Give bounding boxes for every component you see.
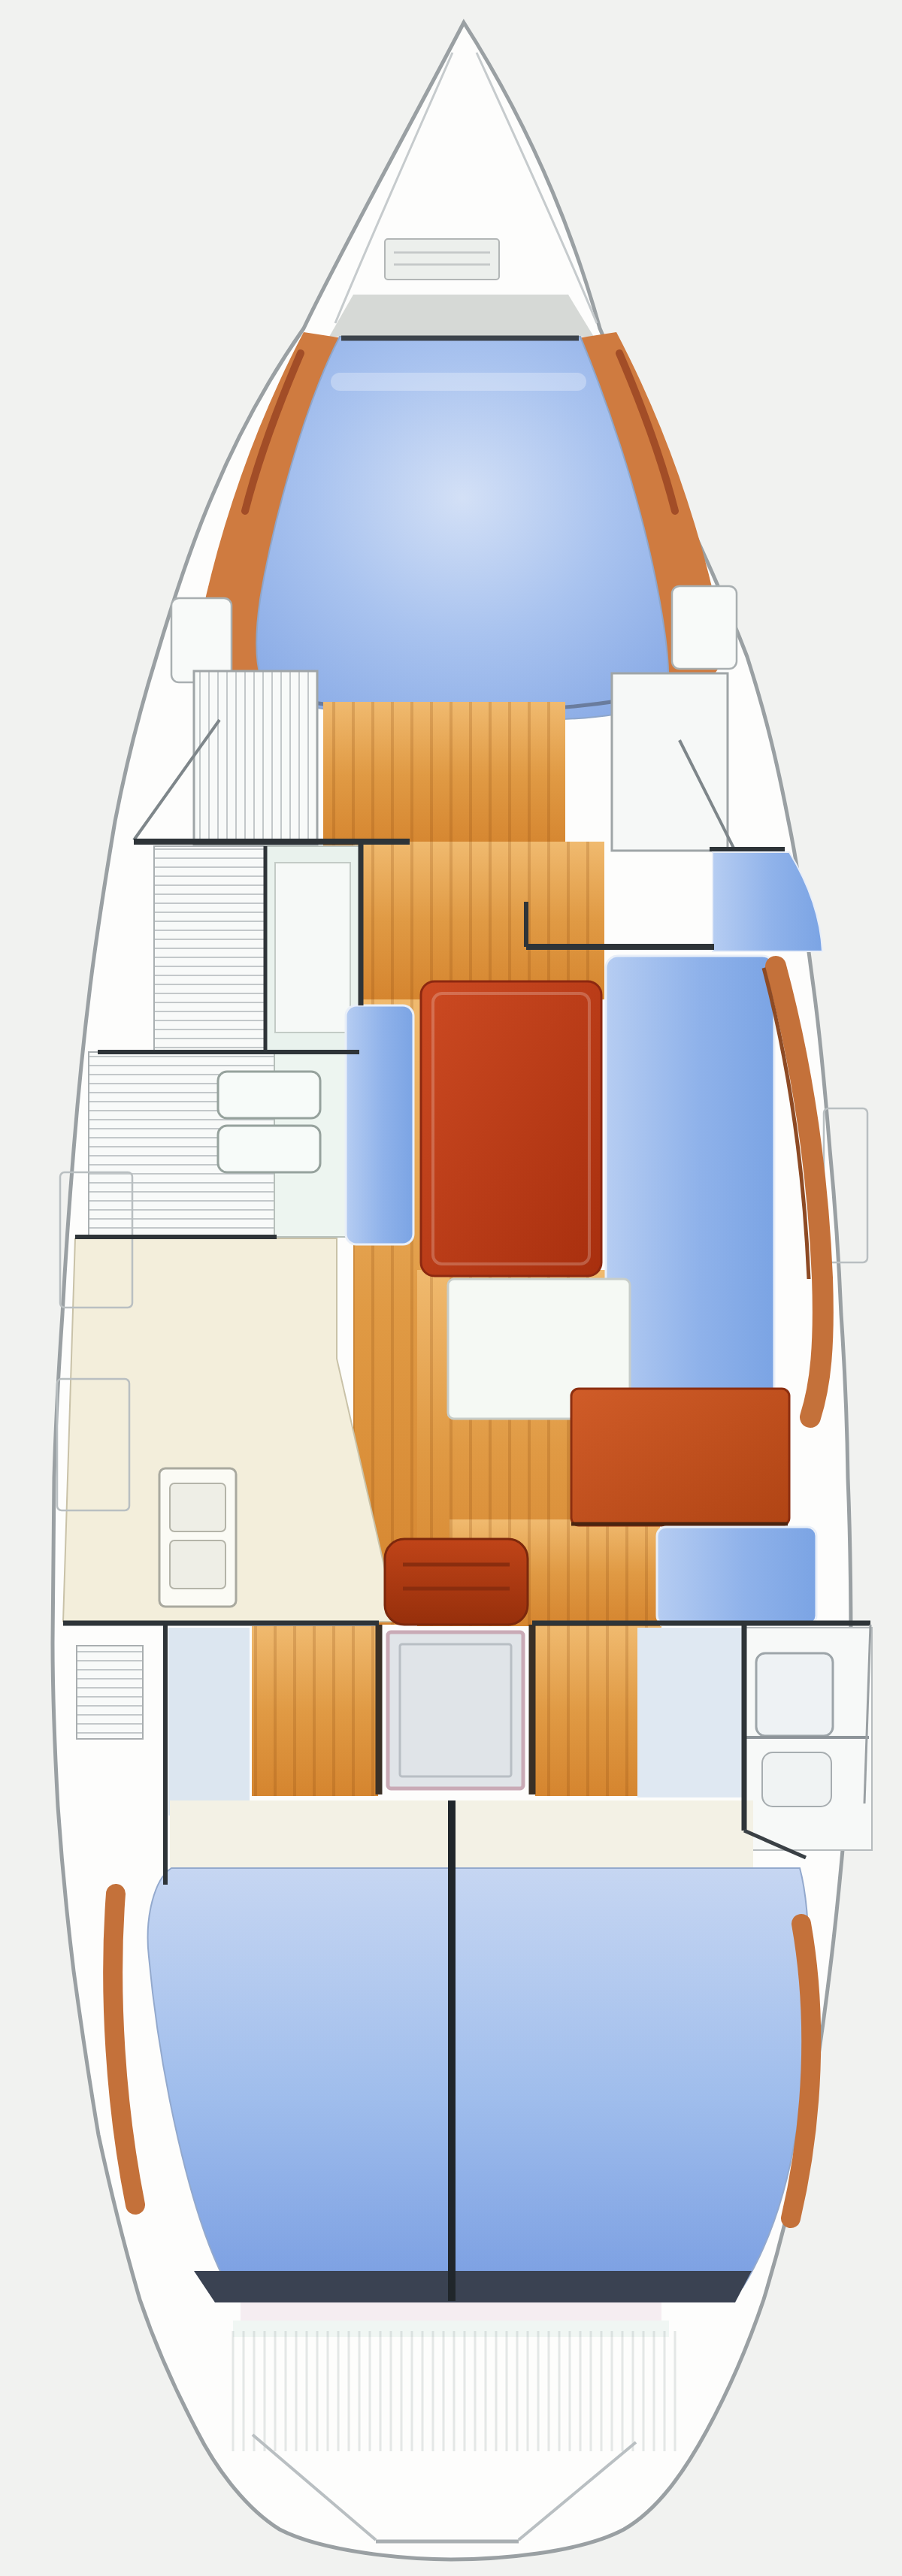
galley-sink-basin (218, 1072, 320, 1118)
port-shelf-locker (171, 598, 232, 682)
fwd-cabin-floor-planks (323, 702, 565, 849)
port-aft-cabin-floor (168, 1628, 250, 1816)
stove-burner (170, 1540, 225, 1589)
nav-desk (571, 1389, 789, 1525)
bow-shelf (329, 295, 594, 337)
companionway-steps (385, 1539, 528, 1625)
yacht-floor-plan (0, 0, 902, 2576)
anchor-locker (385, 239, 499, 280)
v-berth-seam (331, 373, 586, 391)
galley-counter-fwd-top (275, 863, 350, 1033)
companionway-floor-port-planks (252, 1626, 378, 1796)
port-bench (346, 1005, 413, 1244)
port-wardrobe (194, 671, 317, 845)
stern-pink-band (241, 2302, 661, 2321)
head-toilet (762, 1752, 831, 1807)
port-aft-louver-locker (77, 1646, 143, 1739)
saloon-floor-fwd-planks (353, 842, 604, 999)
engine-box (388, 1632, 523, 1788)
stove-burner (170, 1483, 225, 1531)
stbd-wardrobe (612, 673, 728, 851)
stbd-settee (606, 956, 774, 1407)
galley-lockers-fwd (154, 846, 265, 1051)
nav-seat (657, 1527, 816, 1625)
stbd-settee-fwd-corner (713, 852, 822, 951)
stern-deck-texture (227, 2331, 676, 2451)
plan-svg (0, 0, 902, 2576)
aft-berth-pillow-band (170, 1800, 753, 1868)
head-corridor-floor (637, 1628, 744, 1797)
galley-sink-basin (218, 1126, 320, 1172)
head-sink (756, 1653, 833, 1736)
saloon-table (421, 981, 601, 1276)
stbd-shelf-locker (672, 586, 737, 669)
stbd-aft-berth (455, 1868, 809, 2287)
aft-berth-footboard (194, 2271, 752, 2302)
